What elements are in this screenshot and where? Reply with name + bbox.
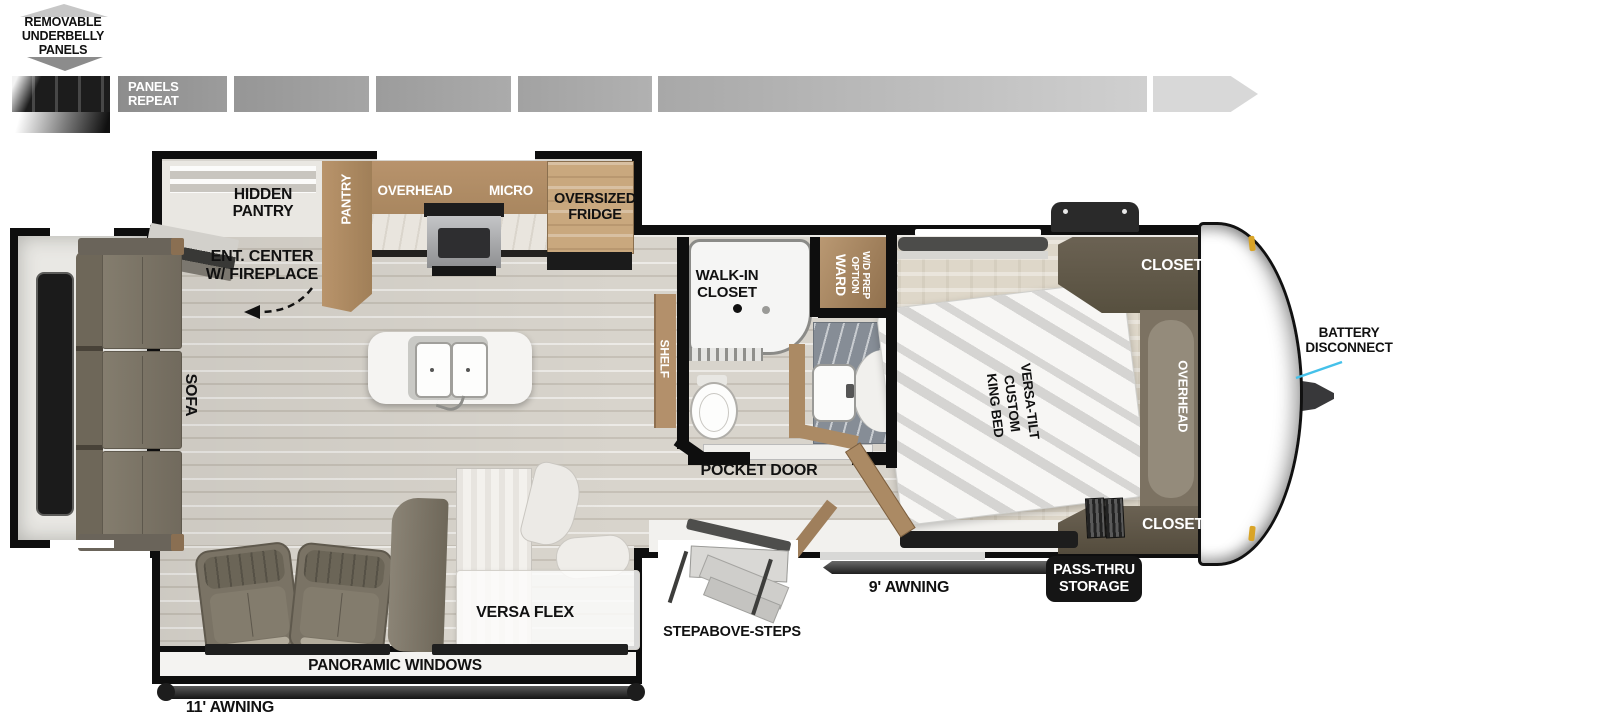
stepabove-steps-label: STEPABOVE-STEPS: [651, 624, 813, 640]
window-gap: [50, 228, 114, 236]
roof-vent-box: [1051, 202, 1139, 232]
underbelly-panel: [518, 76, 652, 112]
shower-mat: [689, 348, 763, 361]
window-gap: [377, 151, 535, 160]
underbelly-panel-arrow-icon: [1153, 76, 1258, 112]
rear-window: [36, 272, 74, 516]
bedroom-window-band: [898, 237, 1048, 251]
dashed-arrow-icon: [238, 280, 320, 322]
ward-option-label: W/D PREP OPTION: [849, 251, 871, 299]
panels-repeat-label: PANELS REPEAT: [128, 80, 179, 109]
awning-9ft-bar: [823, 561, 1049, 574]
underbelly-panel: [376, 76, 511, 112]
awning-end-cap: [627, 683, 645, 701]
bedroom-ledge: [898, 251, 1048, 259]
bedroom-overhead-label: OVERHEAD: [1175, 351, 1190, 441]
privacy-divider: [387, 497, 448, 653]
seat-cushion: [209, 585, 291, 644]
awning-9ft-rail: [820, 552, 985, 560]
awning-9ft-label: 9' AWNING: [849, 579, 969, 597]
window-gap: [50, 540, 114, 548]
awning-11ft-bar: [166, 686, 636, 699]
range-hood: [424, 203, 504, 217]
oven-window: [438, 228, 490, 258]
closet-bottom-label: CLOSET: [1133, 516, 1213, 533]
sofa: [102, 252, 182, 548]
bath-faucet: [846, 384, 854, 398]
awning-11ft-label: 11' AWNING: [170, 699, 290, 717]
fridge-base: [547, 252, 632, 270]
fridge-label: OVERSIZED FRIDGE: [545, 191, 645, 223]
front-cap: [1198, 222, 1303, 566]
ward-label-block: W/D PREP OPTION WARD: [816, 237, 888, 313]
faucet-hole: [466, 368, 470, 372]
underbelly-label: REMOVABLE UNDERBELLY PANELS: [6, 15, 120, 57]
bedside-step: [1104, 498, 1125, 539]
walk-in-closet-label: WALK-IN CLOSET: [671, 268, 783, 302]
shower-drain: [762, 306, 770, 314]
shelf-label: SHELF: [657, 331, 670, 387]
overhead-label: OVERHEAD: [371, 183, 459, 198]
rv-floorplan-diagram: REMOVABLE UNDERBELLY PANELS PANELS REPEA…: [0, 0, 1600, 722]
stove-base: [432, 266, 496, 276]
sofa-armrest: [78, 238, 184, 255]
sofa-cushion: [102, 252, 182, 349]
shower-drain: [733, 304, 742, 313]
underbelly-panel: [234, 76, 369, 112]
bedside-step: [1085, 498, 1106, 539]
underbelly-panel-fade: [12, 112, 110, 133]
callout-line-icon: [1290, 352, 1350, 384]
theater-seat: [288, 541, 395, 658]
closet-top-label: CLOSET: [1132, 257, 1212, 274]
panoramic-window: [205, 644, 390, 655]
pass-thru-storage-badge: PASS-THRU STORAGE: [1046, 556, 1142, 602]
clearance-light: [1248, 236, 1256, 252]
seat-back: [303, 549, 386, 589]
pocket-door-label: POCKET DOOR: [698, 462, 820, 480]
sofa-cushion: [102, 351, 182, 448]
hidden-pantry-label: HIDDEN PANTRY: [203, 186, 323, 221]
bed-label: VERSA-TILT CUSTOM KING BED: [982, 362, 1044, 444]
window-gap: [915, 229, 1041, 236]
sofa-label: SOFA: [181, 365, 199, 425]
panoramic-windows-label: PANORAMIC WINDOWS: [285, 657, 505, 674]
arrow-down-icon: [27, 57, 103, 71]
king-bed: VERSA-TILT CUSTOM KING BED: [876, 280, 1150, 527]
versa-flex-label: VERSA FLEX: [455, 604, 595, 622]
underbelly-panel-repeat: PANELS REPEAT: [118, 76, 227, 112]
pass-thru-storage-label: PASS-THRU STORAGE: [1053, 562, 1135, 595]
seat-back: [203, 548, 286, 590]
theater-seat: [194, 541, 302, 660]
ward-label: WARD: [833, 254, 849, 296]
faucet-hole: [430, 368, 434, 372]
underbelly-panel-long: [658, 76, 1147, 112]
battery-disconnect-label: BATTERY DISCONNECT: [1298, 325, 1400, 355]
panoramic-window: [432, 644, 628, 655]
toilet: [690, 382, 738, 440]
bedroom-lower-window: [900, 531, 1078, 548]
pantry-label: PANTRY: [340, 169, 355, 229]
seat-cushion: [299, 586, 380, 644]
underbelly-panel-dark: [12, 76, 110, 112]
sofa-backrest: [76, 252, 103, 548]
micro-label: MICRO: [478, 183, 544, 198]
